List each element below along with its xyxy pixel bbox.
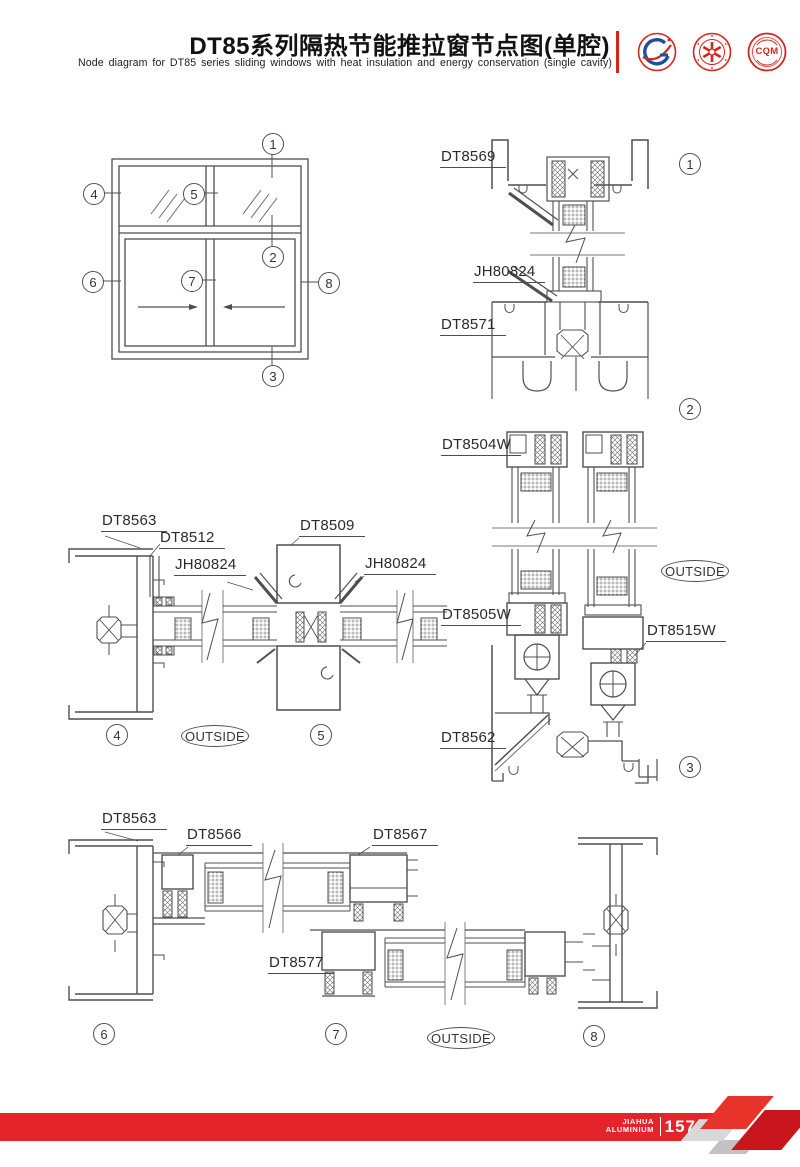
page-title-en: Node diagram for DT85 series sliding win… — [78, 57, 612, 69]
detail-marker-1: 1 — [679, 153, 701, 175]
detail-marker-3: 3 — [679, 756, 701, 778]
footer-brand: JIAHUA ALUMINIUM — [606, 1118, 654, 1134]
quality-seal-logo-icon — [692, 32, 732, 72]
gasket-label-jh80824-right: JH80824 — [364, 556, 436, 575]
profile-label-dt8563-mid: DT8563 — [101, 513, 167, 532]
section-marker-4: 4 — [83, 183, 105, 205]
profile-label-dt8566: DT8566 — [186, 827, 252, 846]
profile-label-dt8512: DT8512 — [159, 530, 225, 549]
profile-label-dt8509: DT8509 — [299, 518, 365, 537]
detail-marker-2: 2 — [679, 398, 701, 420]
header-divider — [616, 31, 619, 73]
detail-marker-4: 4 — [106, 724, 128, 746]
profile-label-dt8567: DT8567 — [372, 827, 438, 846]
gasket-label-jh80824-left: JH80824 — [174, 557, 246, 576]
vertical-section-drawing — [435, 125, 735, 795]
page-title-cn: DT85系列隔热节能推拉窗节点图(单腔) — [189, 26, 610, 61]
profile-label-dt8563-bottom: DT8563 — [101, 811, 167, 830]
outside-label-bottom: OUTSIDE — [427, 1027, 495, 1049]
profile-label-dt8515w: DT8515W — [646, 623, 726, 642]
profile-label-dt8571: DT8571 — [440, 317, 506, 336]
section-marker-8: 8 — [318, 272, 340, 294]
section-marker-3: 3 — [262, 365, 284, 387]
footer-divider — [660, 1117, 662, 1136]
section-marker-6: 6 — [82, 271, 104, 293]
section-marker-7: 7 — [181, 270, 203, 292]
gasket-label-jh80824-top: JH80824 — [473, 264, 545, 283]
section-marker-5: 5 — [183, 183, 205, 205]
section-marker-1: 1 — [262, 133, 284, 155]
cqm-logo-text: CQM — [747, 46, 787, 57]
outside-label-right: OUTSIDE — [661, 560, 729, 582]
gt-aluminium-logo-icon — [637, 32, 677, 72]
detail-marker-7: 7 — [325, 1023, 347, 1045]
detail-marker-6: 6 — [93, 1023, 115, 1045]
section-marker-2: 2 — [262, 246, 284, 268]
profile-label-dt8577: DT8577 — [268, 955, 334, 974]
profile-label-dt8504w: DT8504W — [441, 437, 521, 456]
outside-label-mid: OUTSIDE — [181, 725, 249, 747]
footer-band: JIAHUA ALUMINIUM 157 — [0, 1113, 718, 1141]
window-elevation-drawing — [85, 130, 347, 392]
detail-marker-5: 5 — [310, 724, 332, 746]
cqm-logo-icon: CQM — [747, 32, 787, 72]
detail-marker-8: 8 — [583, 1025, 605, 1047]
catalog-page: DT85系列隔热节能推拉窗节点图(单腔) Node diagram for DT… — [0, 0, 800, 1167]
profile-label-dt8569: DT8569 — [440, 149, 506, 168]
footer-brand-line2: ALUMINIUM — [606, 1126, 654, 1134]
